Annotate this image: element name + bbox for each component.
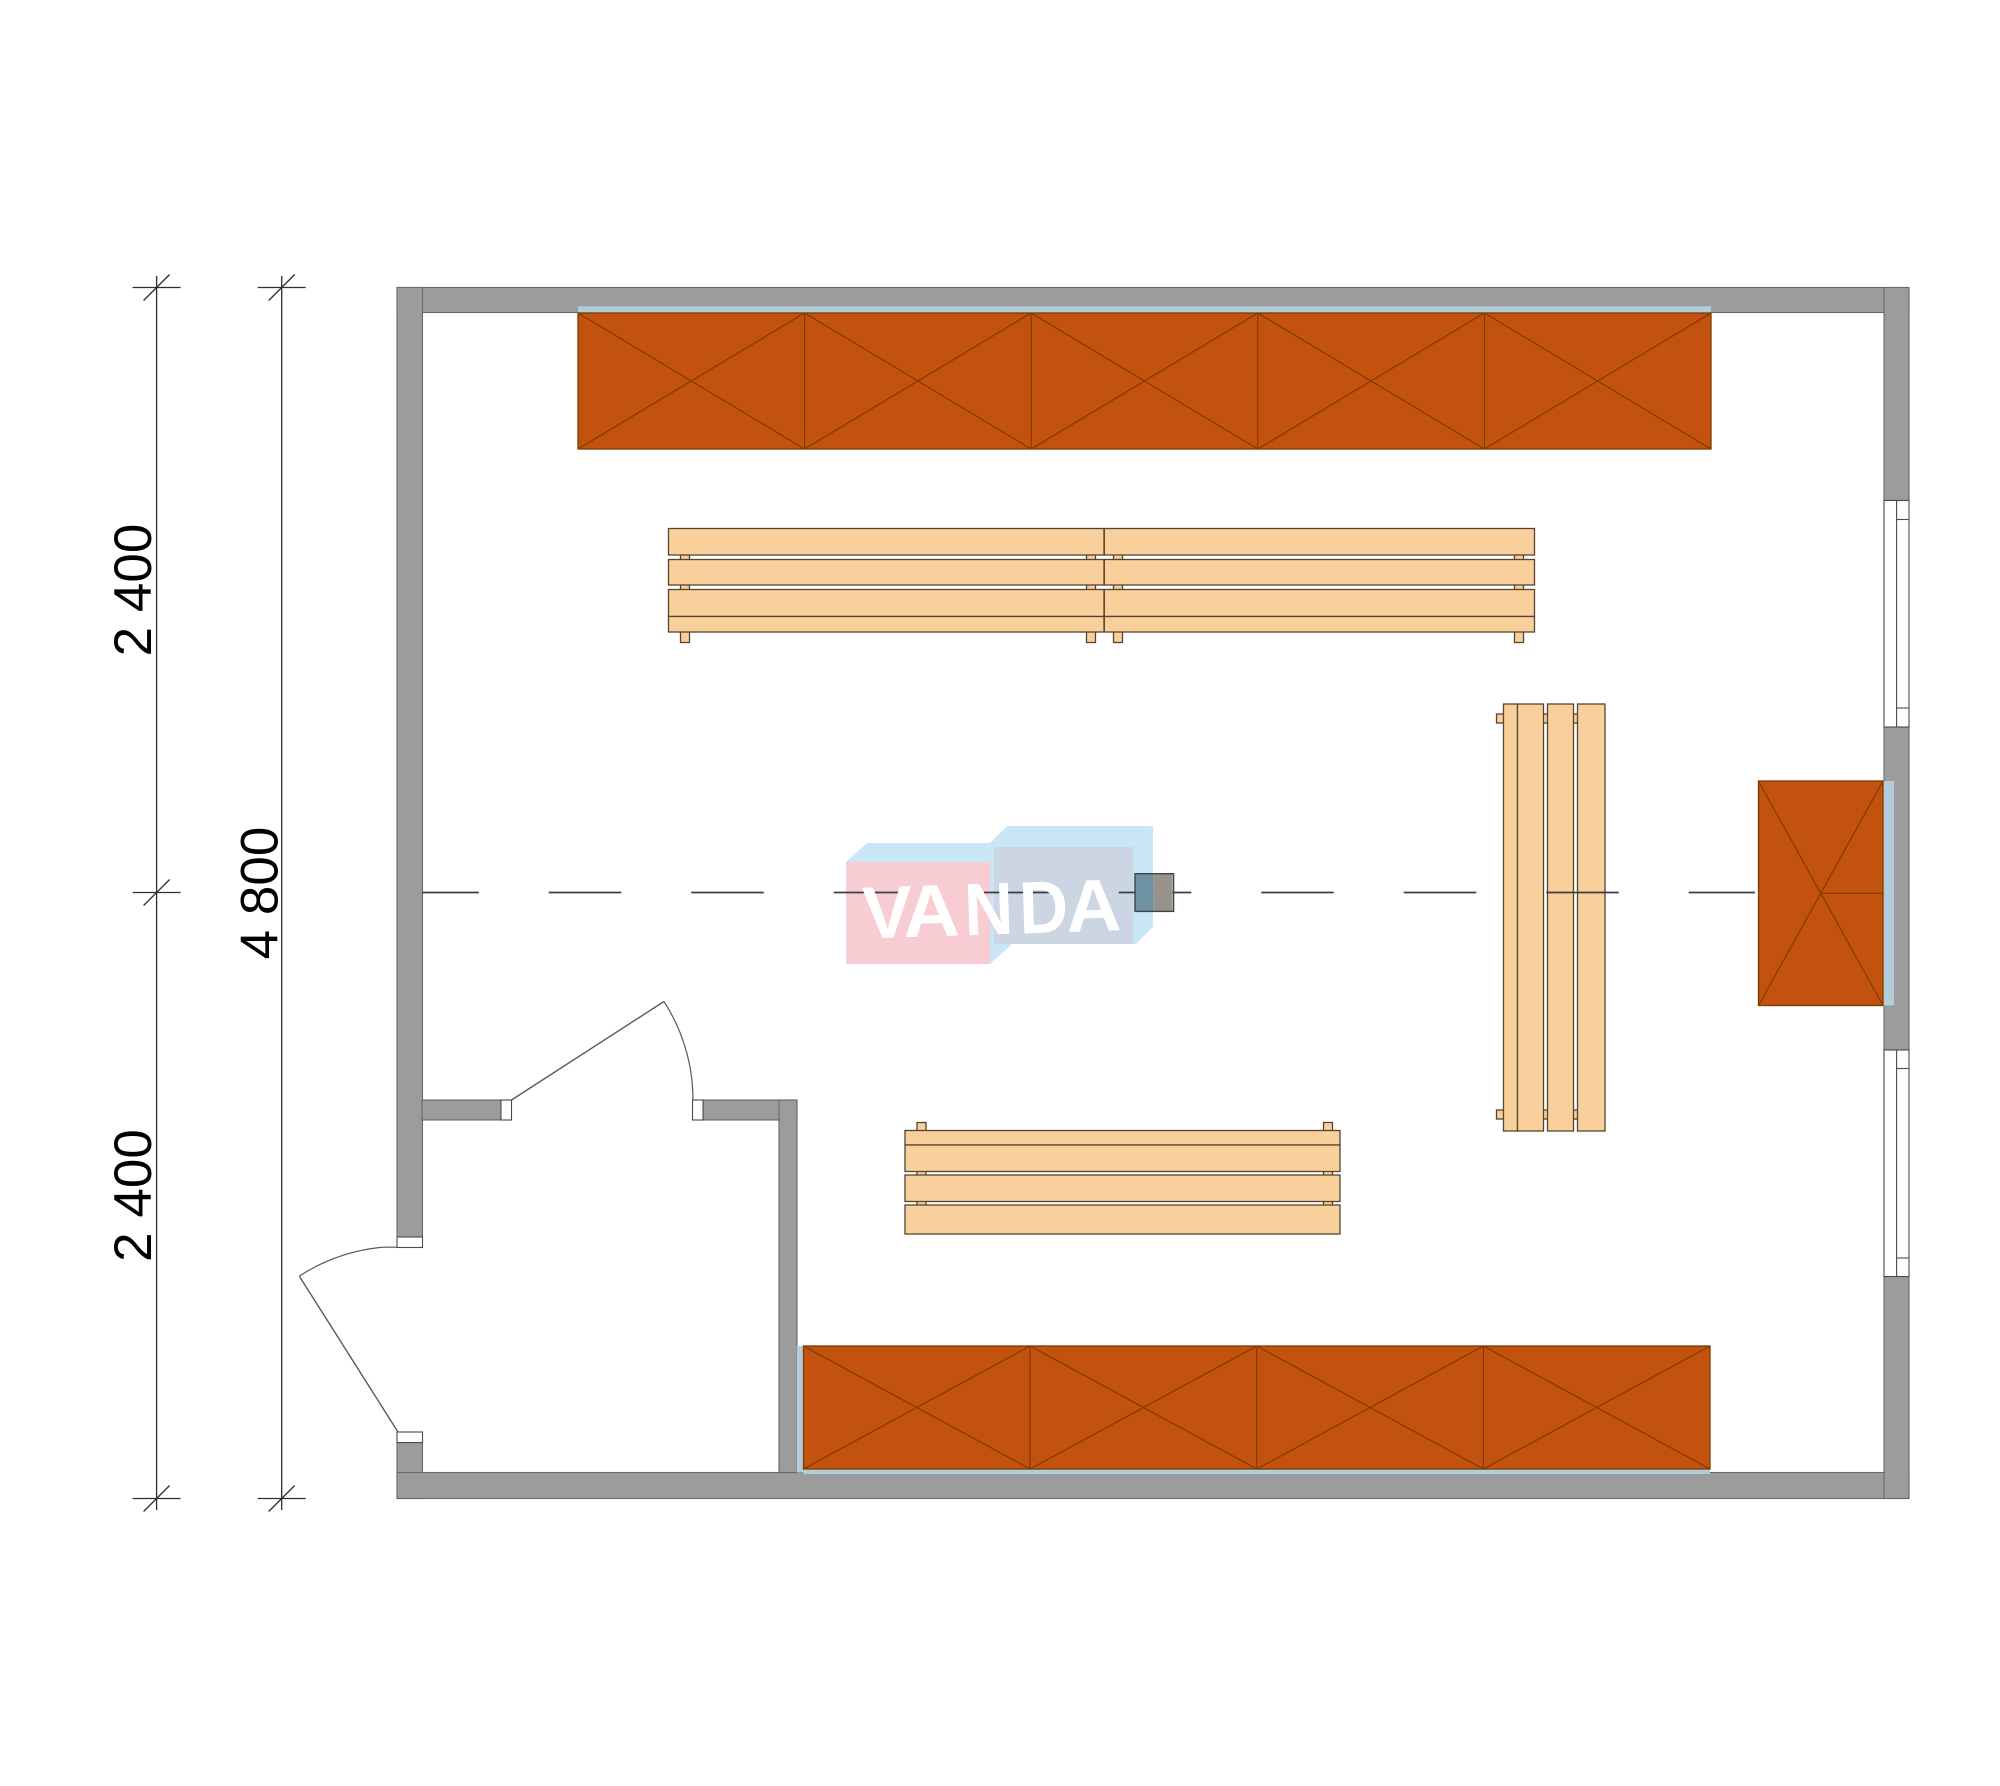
- svg-text:N: N: [963, 867, 1015, 952]
- svg-text:2 400: 2 400: [104, 524, 163, 657]
- svg-text:2 400: 2 400: [104, 1129, 163, 1262]
- svg-text:A: A: [1065, 863, 1123, 948]
- svg-text:4 800: 4 800: [231, 827, 290, 960]
- svg-text:A: A: [901, 868, 961, 953]
- svg-text:D: D: [1018, 865, 1070, 950]
